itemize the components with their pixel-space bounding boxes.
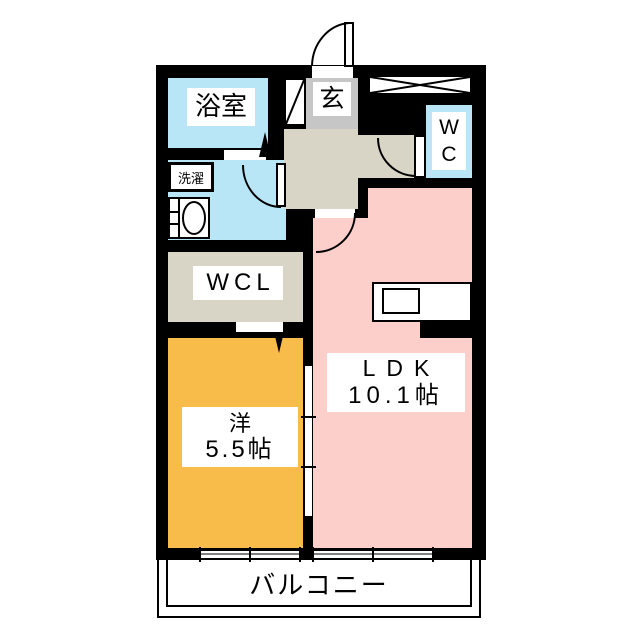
bath-door-opening xyxy=(224,150,266,160)
sliding-door-panel xyxy=(304,467,313,517)
sliding-door-panel xyxy=(304,365,313,418)
western-room-size: 5.5帖 xyxy=(205,436,274,464)
balcony-label-text: バルコニー xyxy=(249,565,388,602)
ldk-door-opening xyxy=(315,209,355,218)
ldk-name: LDK xyxy=(352,355,441,381)
hatched-storage-icon xyxy=(368,75,472,95)
balcony-label: バルコニー xyxy=(167,562,471,604)
kitchen-side-wall xyxy=(420,322,486,338)
wc-door-leaf xyxy=(414,135,426,178)
entrance-threshold xyxy=(312,66,353,78)
sliding-door-panel xyxy=(304,417,313,468)
genkan-label-box: 玄 xyxy=(313,82,351,116)
ldk-size: 10.1帖 xyxy=(348,382,444,410)
hallway-area xyxy=(284,129,358,209)
wcl-label: WCL xyxy=(201,269,274,297)
kitchen-counter-icon xyxy=(372,282,472,322)
window-western-room xyxy=(200,550,300,559)
hallway-extension xyxy=(358,135,414,178)
kitchen-sink-icon xyxy=(382,288,420,314)
washroom-door-leaf xyxy=(276,163,286,207)
western-room-label-box: 洋 5.5帖 xyxy=(182,407,298,467)
vanity-unit-icon xyxy=(168,197,210,239)
wc-label-c: C xyxy=(441,141,456,168)
ldk-label-box: LDK 10.1帖 xyxy=(327,353,465,412)
wcl-label-box: WCL xyxy=(193,266,283,300)
shoe-cabinet-icon xyxy=(284,78,306,126)
entrance-door-leaf xyxy=(344,22,354,67)
bath-label: 浴室 xyxy=(195,92,247,122)
washing-machine-area: 洗濯 xyxy=(168,162,214,192)
bath-label-box: 浴室 xyxy=(187,88,255,126)
genkan-label: 玄 xyxy=(319,85,344,114)
floor-plan: バルコニー 洗濯 浴室 玄 W C xyxy=(0,0,640,640)
western-room-name: 洋 xyxy=(229,411,251,436)
window-ldk xyxy=(313,550,433,559)
wc-label-box: W C xyxy=(432,112,466,170)
ldk-room-upper xyxy=(368,188,472,218)
laundry-label: 洗濯 xyxy=(178,168,204,187)
wcl-door-opening xyxy=(236,322,283,332)
wc-label-w: W xyxy=(439,114,459,141)
